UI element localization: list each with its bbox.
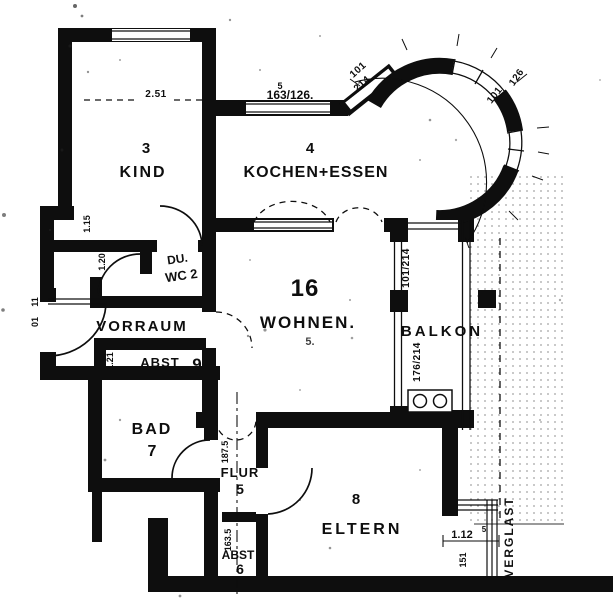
wall-balcony-west-b <box>390 290 408 312</box>
floorplan-page: 3 KIND 2.51 1.15 1.20 11 01 DU. WC 2 VOR… <box>0 0 613 600</box>
wall-bad-left <box>88 366 102 492</box>
fixture-circle-2 <box>434 395 447 408</box>
dim-balcony-door: 101/214 <box>401 248 412 288</box>
wall-spine-upper <box>202 28 216 240</box>
dim-eltern-b: 151 <box>458 552 468 567</box>
dim-flur-a: 187.5 <box>220 441 230 464</box>
dim-entrance-b: 01 <box>30 317 40 327</box>
verglast-label: VERGLAST <box>502 496 516 577</box>
vorraum-label: VORRAUM <box>96 318 188 335</box>
dim-eltern-sup: 5 <box>482 525 487 534</box>
flur-number: 5 <box>236 481 244 497</box>
abst6-number: 6 <box>236 561 244 577</box>
dim-balcony-window: 176/214 <box>412 342 423 382</box>
dim-abst9: 1.21 <box>105 352 115 370</box>
wall-left-upper <box>40 206 54 302</box>
dim-kitchen-window: 163/126. <box>267 88 314 102</box>
flur-label: FLUR <box>221 465 260 480</box>
wall-kind-left <box>58 28 72 218</box>
wall-eltern-top <box>256 412 458 428</box>
wall-kind-bottom <box>40 240 157 252</box>
bad-number: 7 <box>148 443 157 460</box>
balkon-label: BALKON <box>401 323 483 340</box>
divider-opening <box>334 216 384 234</box>
wohnen-number: 16 <box>291 275 320 302</box>
wall-wc-bottom <box>90 296 216 308</box>
wall-flur-abst6-sep <box>222 512 256 522</box>
dim-side-a: 1.15 <box>82 215 92 233</box>
kind-number: 3 <box>142 140 150 157</box>
wall-spine-mid <box>202 252 216 312</box>
balcony-fixture <box>408 390 452 412</box>
dim-entrance-a: 11 <box>30 297 40 307</box>
wall-bad-bottom <box>88 478 220 492</box>
wall-eltern-right <box>442 428 458 516</box>
wall-eltern-left-lower <box>256 514 268 578</box>
bad-label: BAD <box>132 421 173 438</box>
fixture-circle-1 <box>414 395 427 408</box>
neighbour-terrace-raster <box>468 176 564 524</box>
wall-stub-below-bad <box>92 492 102 542</box>
kochen-label: KOCHEN+ESSEN <box>244 164 389 181</box>
du-label: DU. <box>166 251 188 268</box>
wohnen-label: WOHNEN. <box>260 313 356 332</box>
raster-area <box>468 176 564 524</box>
kochen-number: 4 <box>306 140 315 157</box>
dim-eltern-a: 1.12 <box>451 529 472 541</box>
floorplan-drawing: 3 KIND 2.51 1.15 1.20 11 01 DU. WC 2 VOR… <box>0 0 613 600</box>
wall-bad-right-upper <box>204 378 218 440</box>
eltern-number: 8 <box>352 491 360 508</box>
dim-side-b: 1.20 <box>97 253 107 271</box>
wohnen-sub: 5. <box>305 336 314 348</box>
wall-abst9-top <box>96 338 206 350</box>
wall-eltern-left-upper <box>256 428 268 468</box>
kind-label: KIND <box>119 164 166 181</box>
wall-kind-bottom-stub <box>198 240 216 252</box>
wall-corridor-west <box>204 478 218 578</box>
wall-bottom <box>148 576 613 592</box>
abst9-label: ABST <box>140 355 179 370</box>
abst6-label: ABST <box>222 548 255 562</box>
dim-kind-top: 2.51 <box>145 89 166 100</box>
eltern-label: ELTERN <box>322 521 403 538</box>
wall-wc-left <box>140 252 152 274</box>
abst9-number: 9 <box>192 355 201 374</box>
terrace-column <box>478 290 496 308</box>
wall-balcony-west-a <box>390 218 408 242</box>
wall-entry-block-top <box>40 288 56 302</box>
wall-corner-chunk <box>148 518 168 580</box>
